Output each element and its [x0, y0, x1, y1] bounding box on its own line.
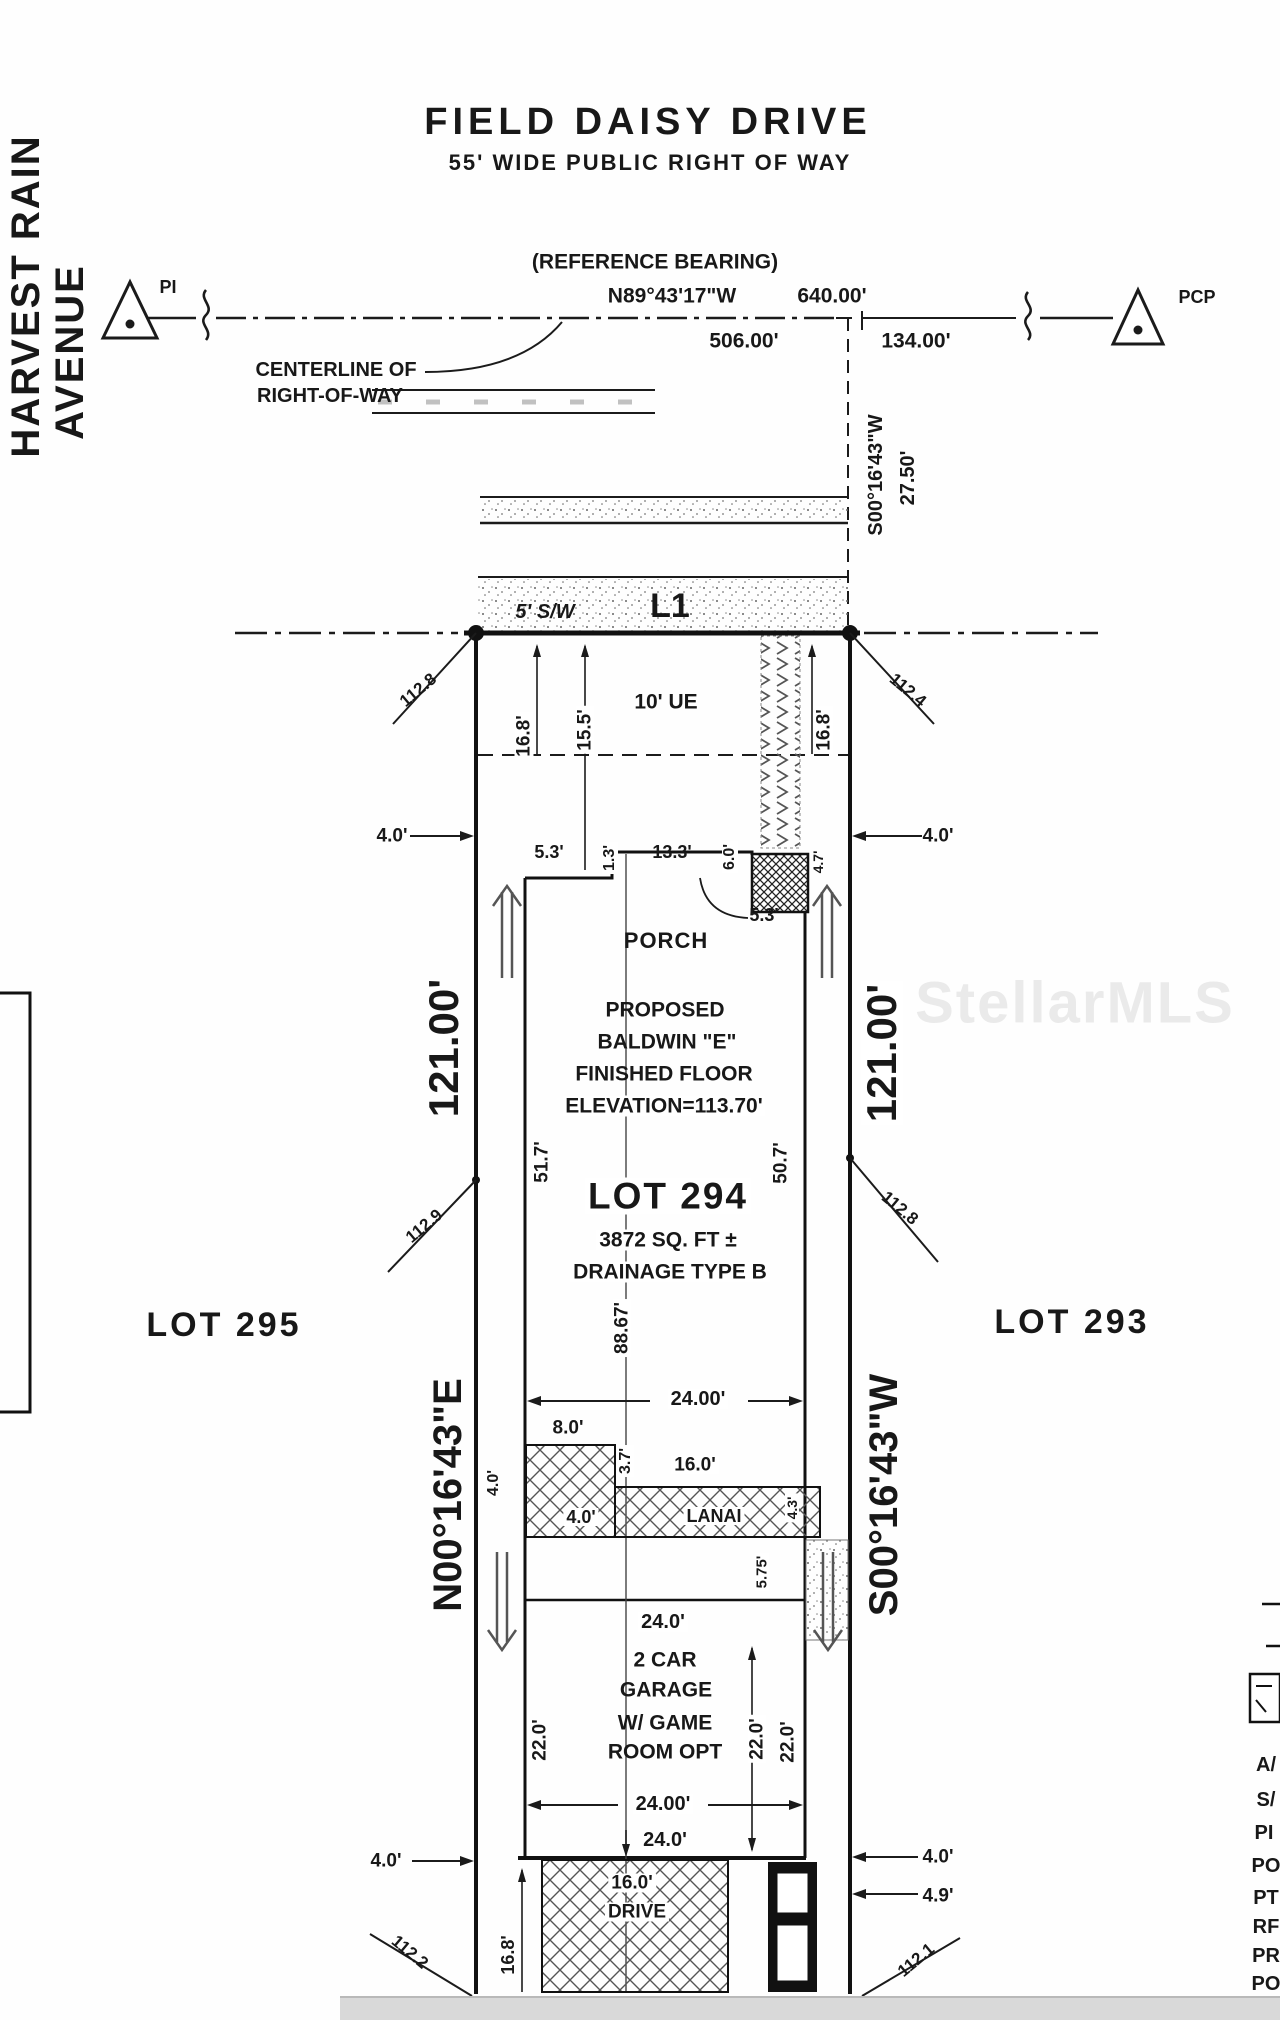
reference-bearing-value: N89°43'17"W [608, 286, 736, 307]
arrowhead-icon [789, 1800, 803, 1810]
arrowhead-icon [852, 1852, 866, 1862]
legend-item: PR [1252, 1946, 1280, 1966]
dim-4-0-top-right: 4.0' [923, 827, 954, 846]
arrowhead-icon [581, 644, 589, 657]
centerline-label-line2: RIGHT-OF-WAY [257, 386, 403, 406]
entry-walk-steps [768, 1862, 817, 1992]
centerline-leader [425, 322, 562, 372]
street-row-subtitle: 55' WIDE PUBLIC RIGHT OF WAY [449, 152, 852, 174]
dim-16-0-lanai: 16.0' [671, 1456, 719, 1475]
dim-5-75: 5.75' [755, 1553, 770, 1592]
dim-24-00-garage: 24.00' [633, 1794, 694, 1814]
curb-band [480, 497, 848, 523]
arrowhead-icon [527, 1800, 541, 1810]
lanai-label: LANAI [684, 1507, 745, 1525]
east-boundary-distance: 121.00' [861, 981, 903, 1125]
arrowhead-icon [460, 1856, 474, 1866]
dim-8-0: 8.0' [553, 1419, 584, 1438]
legend-item: RF [1253, 1917, 1280, 1937]
dim-13-3: 13.3' [652, 843, 691, 861]
arrowhead-icon [852, 1889, 866, 1899]
dim-4-0-bottom-right: 4.0' [923, 1848, 954, 1867]
arrowhead-icon [518, 1868, 526, 1882]
dim-1-3: 1.3' [602, 842, 618, 874]
house-desc-line2: BALDWIN "E" [598, 1032, 737, 1053]
distance-506: 506.00' [709, 331, 778, 352]
west-boundary-distance: 121.00' [423, 979, 465, 1117]
dim-4-9: 4.9' [923, 1887, 954, 1906]
dim-24-0-bottom: 24.0' [640, 1830, 690, 1850]
east-boundary-bearing: S00°16'43"W [864, 1374, 904, 1616]
dim-15-5: 15.5' [576, 706, 595, 754]
legend-item: PO [1252, 1856, 1280, 1876]
dim-5-3-b: 5.3' [749, 906, 778, 924]
line-break-icon [203, 290, 208, 340]
street-centerline [140, 311, 1113, 330]
lot-area: 3872 SQ. FT ± [596, 1230, 740, 1251]
legend-fragment-lines [1250, 1604, 1280, 1722]
garage-line2: GARAGE [620, 1680, 712, 1701]
arrowhead-icon [527, 1396, 541, 1406]
arrowhead-icon [789, 1396, 803, 1406]
entry-stoop-hatch [752, 854, 808, 912]
dim-4-0-in-pad: 4.0' [563, 1508, 598, 1526]
dim-16-8-drive: 16.8' [499, 1935, 517, 1974]
dim-88-67: 88.67' [613, 1299, 632, 1357]
legend-item: PT [1253, 1888, 1279, 1908]
adjacent-parcel-fragment [0, 993, 30, 1412]
legend-item: PI [1255, 1823, 1274, 1843]
lot-drainage: DRAINAGE TYPE B [570, 1262, 770, 1283]
pi-label: PI [159, 278, 176, 296]
dim-4-0-rotated: 4.0' [486, 1470, 502, 1496]
garage-line4: ROOM OPT [608, 1742, 722, 1763]
centerline-label-line1: CENTERLINE OF [255, 360, 416, 380]
reference-bearing-label: (REFERENCE BEARING) [532, 252, 778, 273]
garage-line1: 2 CAR [633, 1650, 696, 1671]
offset-distance: 27.50' [898, 451, 918, 506]
dim-24-0-top: 24.0' [638, 1612, 688, 1632]
line-l1-label: L1 [650, 589, 690, 623]
adjacent-lot-left: LOT 295 [146, 1308, 301, 1342]
ue-label: 10' UE [634, 692, 697, 713]
reference-distance: 640.00' [797, 286, 866, 307]
arrowhead-icon [533, 644, 541, 657]
spot-elevation-leaders [370, 633, 960, 1996]
side-street-name-line1: HARVEST RAIN [6, 134, 46, 457]
dim-51-7: 51.7' [533, 1141, 552, 1183]
dim-3-7: 3.7' [618, 1445, 634, 1477]
watermark: StellarMLS [915, 970, 1235, 1037]
legend-item: A/ [1256, 1755, 1276, 1775]
house-desc-line4: ELEVATION=113.70' [562, 1096, 765, 1117]
stoop-leader [700, 878, 748, 918]
legend-item: S/ [1257, 1790, 1276, 1810]
dim-4-7: 4.7' [811, 851, 825, 874]
dim-16-8-right: 16.8' [815, 706, 834, 754]
street-title: FIELD DAISY DRIVE [424, 103, 871, 141]
pcp-monument-icon [1113, 290, 1163, 344]
west-boundary-bearing: N00°16'43"E [428, 1378, 468, 1612]
arrowhead-icon [808, 644, 816, 657]
house-desc-line1: PROPOSED [605, 1000, 724, 1021]
dim-16-0-drive: 16.0' [608, 1874, 656, 1893]
dim-4-0-bottom-left: 4.0' [371, 1852, 402, 1871]
dim-4-0-top-left: 4.0' [377, 827, 408, 846]
scan-edge-bar [340, 1996, 1280, 2020]
utility-strip-hatch [761, 636, 800, 848]
pavement-edge-band [372, 390, 655, 413]
walk-pad-stipple [806, 1540, 848, 1640]
pcp-label: PCP [1178, 288, 1215, 306]
dim-4-3: 4.3' [785, 1494, 799, 1523]
survey-plat-page: StellarMLS FIELD DAISY DRIVE 55' WIDE PU… [0, 0, 1280, 2020]
arrowhead-icon [852, 831, 866, 841]
dim-16-8-left: 16.8' [515, 712, 534, 760]
arrowhead-icon [460, 831, 474, 841]
dim-6-0: 6.0' [722, 841, 738, 873]
offset-bearing: S00°16'43"W [866, 414, 886, 535]
sidewalk-label: 5' S/W [515, 602, 574, 622]
porch-label: PORCH [624, 930, 708, 952]
drive-label: DRIVE [605, 1903, 669, 1922]
legend-item: PO [1252, 1974, 1280, 1994]
arrowhead-icon [748, 1838, 756, 1852]
dim-22-0-c: 22.0' [779, 1721, 798, 1763]
garage-line3: W/ GAME [618, 1713, 713, 1734]
house-desc-line3: FINISHED FLOOR [575, 1064, 752, 1085]
arrowhead-icon [748, 1646, 756, 1660]
dim-50-7: 50.7' [772, 1142, 791, 1184]
line-break-icon [1025, 292, 1030, 340]
dim-5-3-a: 5.3' [534, 843, 563, 861]
dim-24-00-lanai: 24.00' [668, 1389, 729, 1409]
lot-number: LOT 294 [585, 1178, 751, 1215]
distance-134: 134.00' [881, 331, 950, 352]
dim-22-0-a: 22.0' [531, 1719, 550, 1761]
arrowhead-icon [622, 1844, 630, 1857]
pi-monument-icon [103, 282, 157, 338]
dim-22-0-b: 22.0' [748, 1715, 767, 1763]
adjacent-lot-right: LOT 293 [994, 1305, 1149, 1339]
side-street-name-line2: AVENUE [50, 264, 90, 440]
